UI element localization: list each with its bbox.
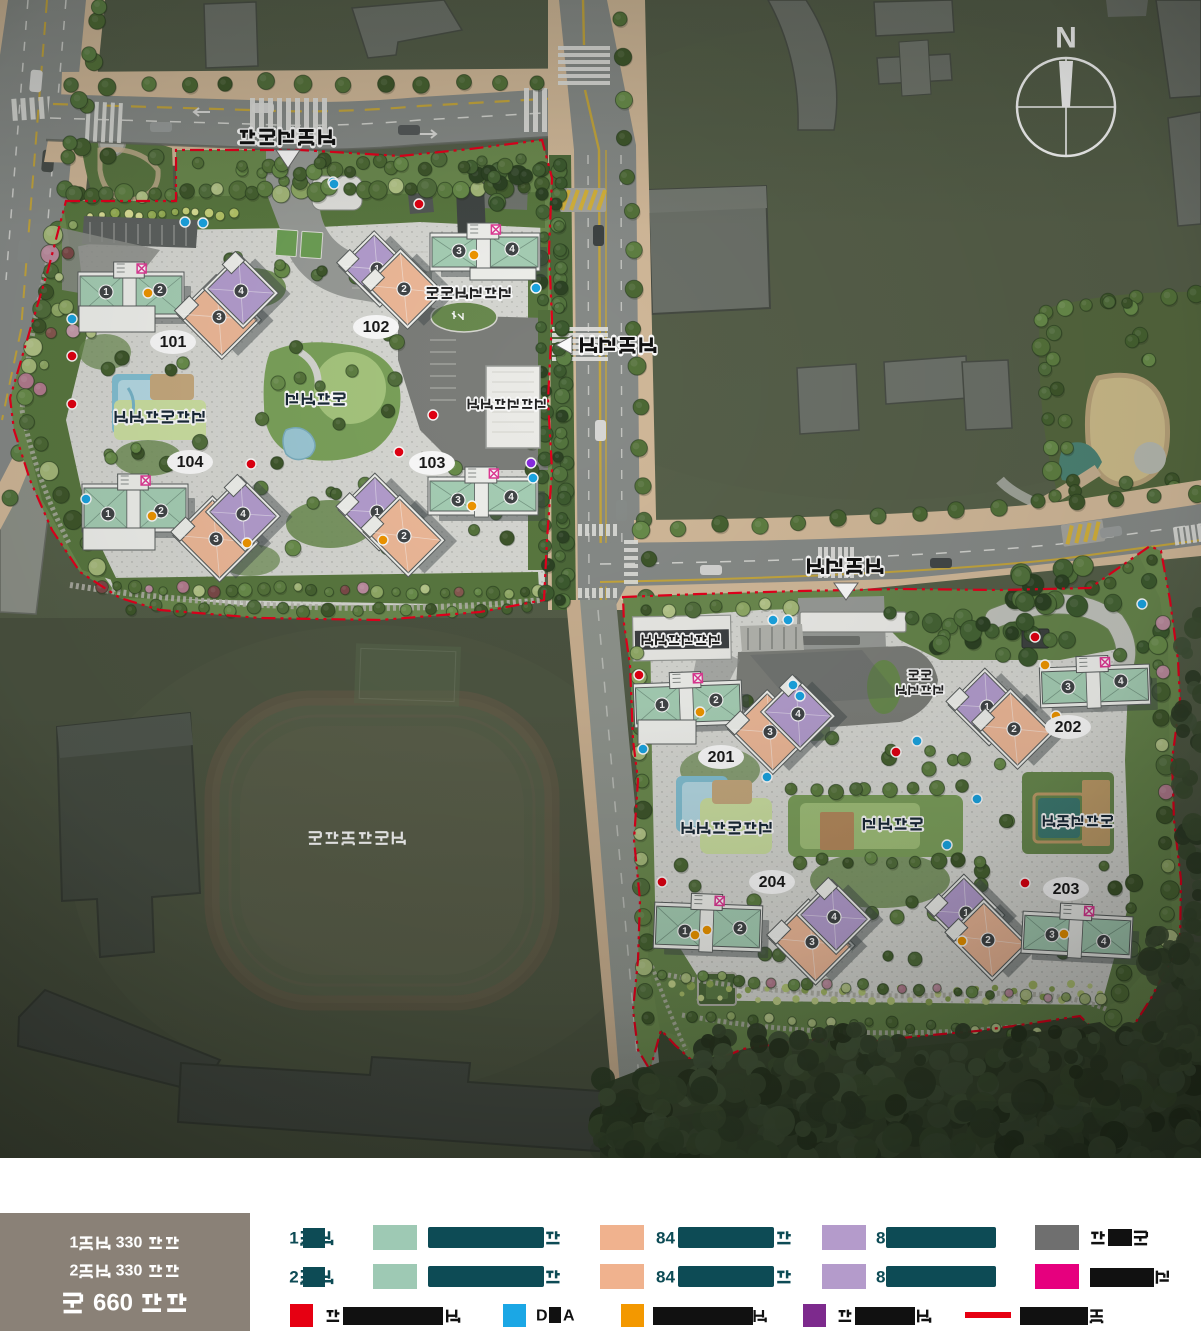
svg-text:660: 660 (93, 1290, 133, 1317)
svg-text:330: 330 (116, 1235, 143, 1252)
svg-text:1: 1 (289, 1229, 298, 1248)
svg-text:1: 1 (70, 1235, 79, 1252)
svg-text:330: 330 (116, 1263, 143, 1280)
svg-text:84: 84 (656, 1229, 675, 1248)
svg-text:8: 8 (876, 1268, 885, 1287)
svg-text:8: 8 (876, 1229, 885, 1248)
svg-text:84: 84 (656, 1268, 675, 1287)
svg-text:A: A (563, 1308, 575, 1325)
svg-text:2: 2 (289, 1268, 298, 1287)
svg-text:D: D (536, 1308, 548, 1325)
svg-text:2: 2 (70, 1263, 79, 1280)
